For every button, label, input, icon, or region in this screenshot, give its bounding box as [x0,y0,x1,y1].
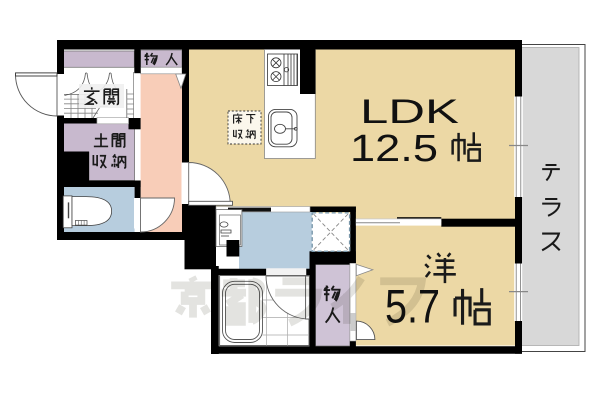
svg-text:LDK: LDK [360,93,459,131]
svg-text:12.5: 12.5 [350,128,438,170]
